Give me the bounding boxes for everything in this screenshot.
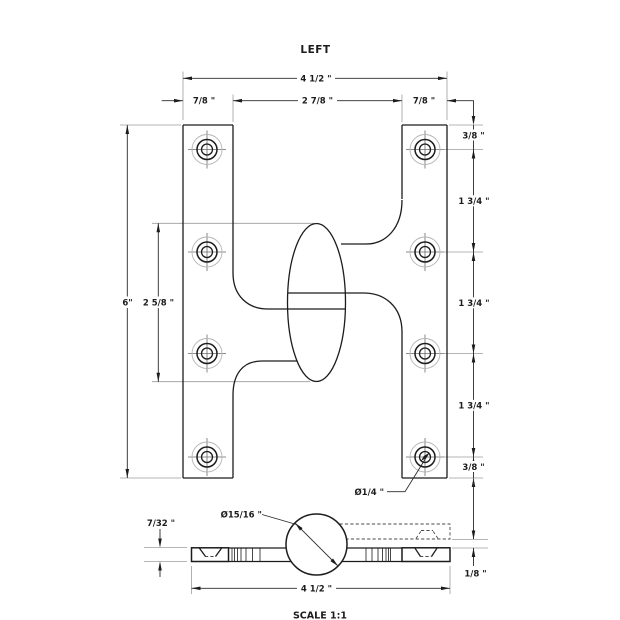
bottom-view — [192, 514, 451, 575]
knuckle-diameter-arrow — [262, 515, 338, 567]
dim-knuckle-height-label: 2 5/8 " — [143, 298, 174, 308]
countersink-left — [200, 548, 222, 556]
knuckle-arms — [233, 200, 402, 395]
hinge-technical-drawing: LEFT 4 1/2 " 7/8 " 2 7/8 " 7/8 " 3/8 " 1… — [0, 0, 620, 620]
drawing-canvas: LEFT 4 1/2 " 7/8 " 2 7/8 " 7/8 " 3/8 " 1… — [0, 0, 620, 620]
front-view — [183, 125, 447, 478]
dim-chain-2-label: 1 3/4 " — [458, 197, 489, 207]
screw-hole — [188, 335, 226, 373]
dim-left-thickness-label: 7/32 " — [147, 519, 175, 529]
knuckle-ellipse — [288, 224, 346, 382]
leaf-edge-bar — [192, 548, 451, 562]
dim-top-right-leaf-label: 7/8 " — [413, 97, 435, 107]
screw-hole — [406, 335, 444, 373]
dim-chain-1-label: 3/8 " — [462, 132, 484, 142]
dimension-lines — [126, 77, 476, 591]
dim-chain-5-label: 3/8 " — [462, 463, 484, 473]
countersink-right — [415, 548, 437, 556]
screw-hole — [188, 131, 226, 169]
hatch-lines — [232, 548, 391, 562]
hidden-leaf — [340, 524, 451, 539]
scale-note: SCALE 1:1 — [293, 611, 347, 620]
hole-diameter-leader — [387, 453, 429, 492]
dim-right-thickness-label: 1/8 " — [464, 570, 486, 580]
dim-top-left-leaf-label: 7/8 " — [193, 97, 215, 107]
left-leaf — [183, 125, 233, 478]
dim-chain-3-label: 1 3/4 " — [458, 299, 489, 309]
dim-hole-diameter-label: Ø1/4 " — [354, 487, 384, 498]
dim-top-center-label: 2 7/8 " — [302, 97, 333, 107]
screw-holes — [188, 131, 444, 477]
dim-height-label: 6" — [122, 298, 132, 308]
right-leaf — [402, 125, 447, 478]
dim-knuckle-diameter-label: Ø15/16 " — [221, 510, 262, 521]
dim-bottom-width-label: 4 1/2 " — [301, 584, 332, 594]
dim-top-width-label: 4 1/2 " — [300, 74, 331, 84]
screw-hole — [188, 233, 226, 271]
screw-hole — [406, 131, 444, 169]
screw-hole — [188, 438, 226, 476]
dim-chain-4-label: 1 3/4 " — [458, 402, 489, 412]
screw-hole — [406, 233, 444, 271]
view-title: LEFT — [300, 44, 331, 56]
